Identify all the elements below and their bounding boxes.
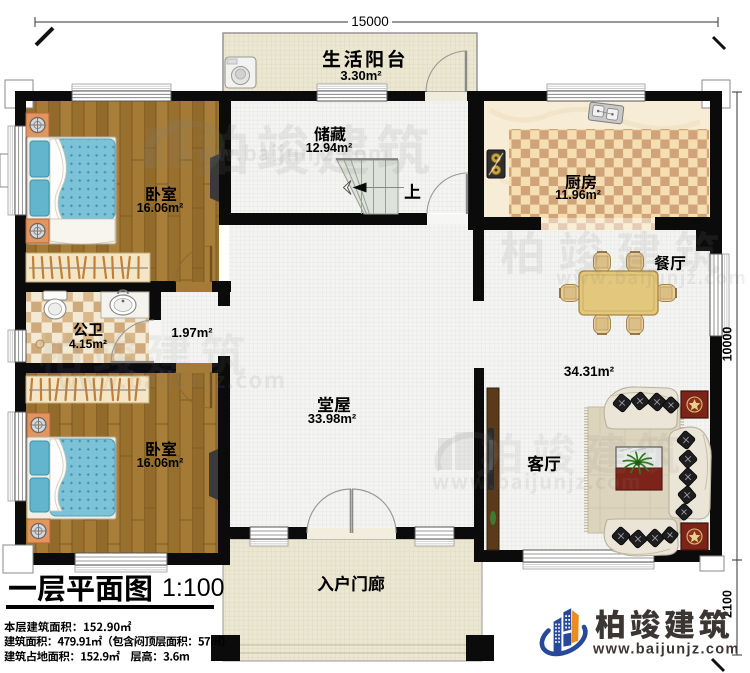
svg-text:www.baijunjz.com: www.baijunjz.com [592, 642, 740, 658]
svg-text:1:100: 1:100 [162, 574, 225, 602]
svg-text:1.97m²: 1.97m² [171, 325, 213, 340]
svg-text:33.98m²: 33.98m² [308, 411, 357, 426]
svg-text:4.15m²: 4.15m² [69, 337, 107, 351]
svg-text:34.31m²: 34.31m² [564, 364, 615, 379]
svg-text:10000: 10000 [721, 327, 735, 362]
svg-text:16.06m²: 16.06m² [137, 201, 184, 215]
svg-text:11.96m²: 11.96m² [555, 188, 601, 202]
svg-text:3.30m²: 3.30m² [340, 68, 382, 83]
svg-text:12.94m²: 12.94m² [306, 141, 353, 155]
svg-text:16.06m²: 16.06m² [137, 456, 184, 470]
svg-text:15000: 15000 [351, 14, 389, 29]
